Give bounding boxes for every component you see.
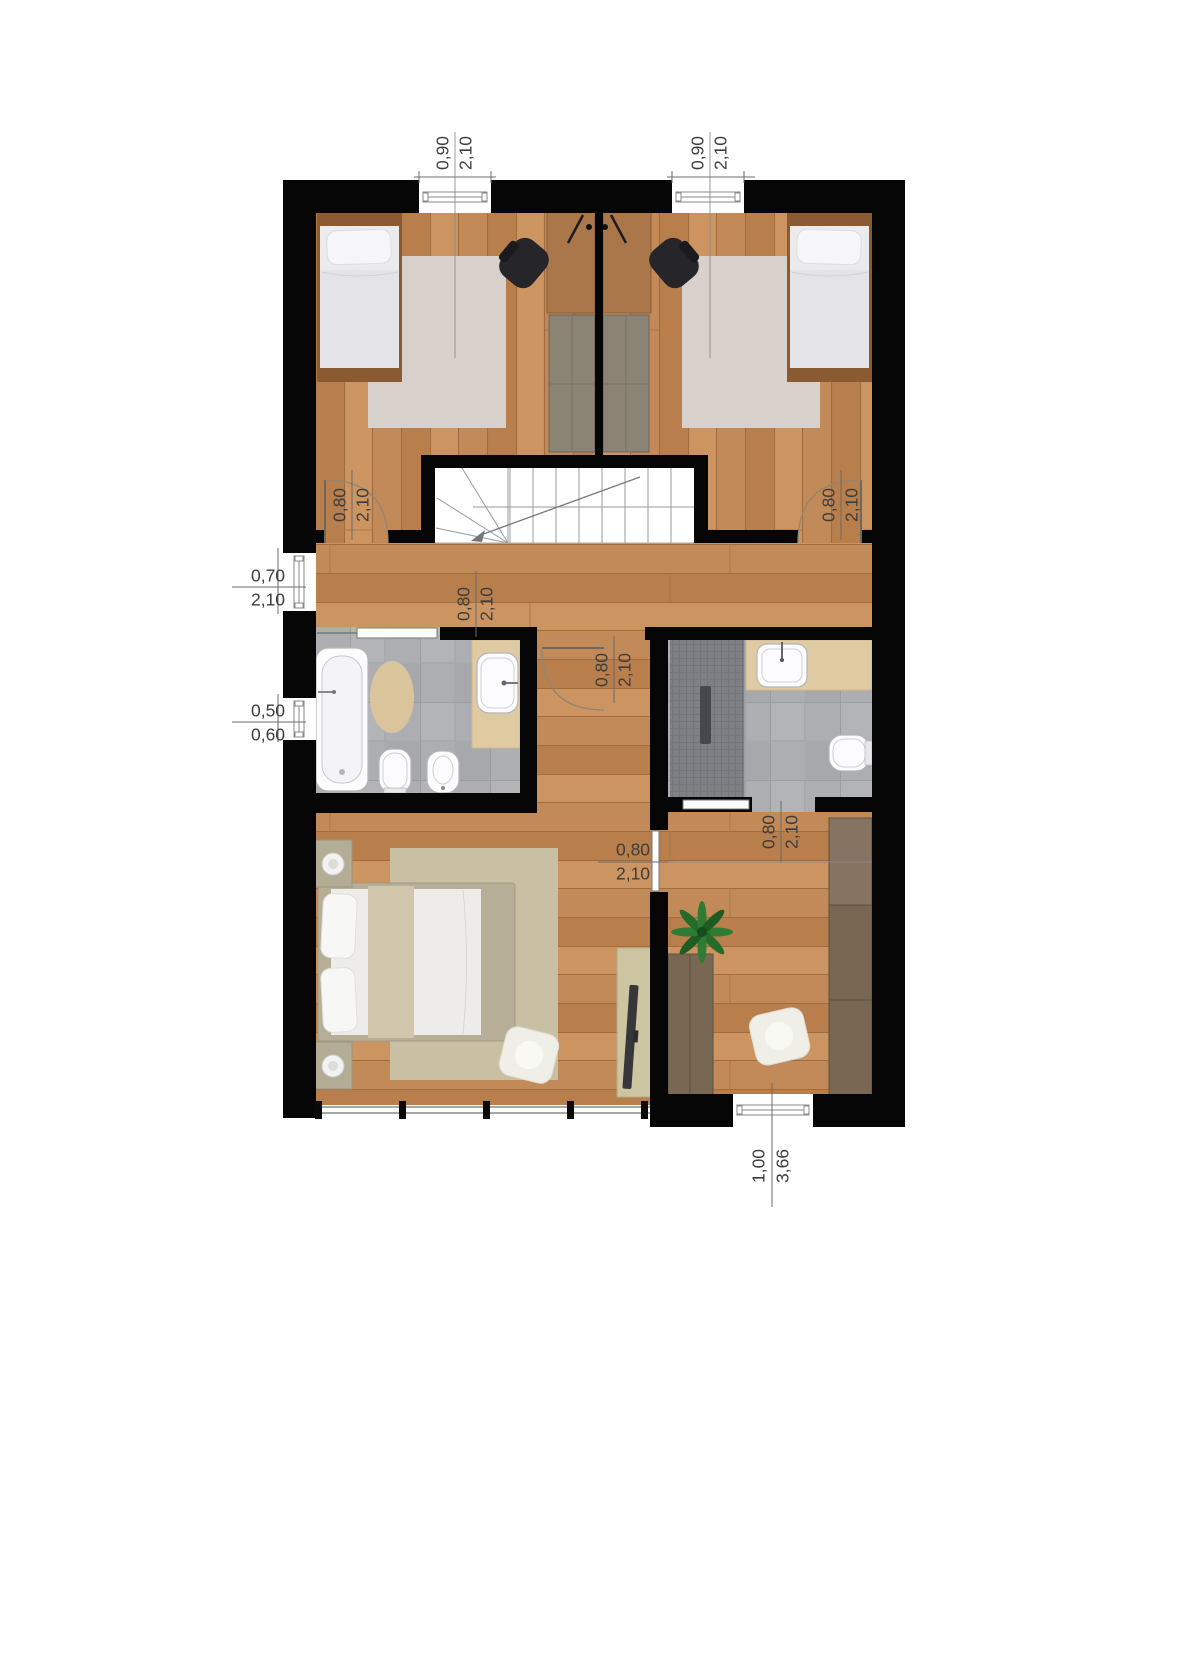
- wall-bath-left-east: [520, 627, 537, 793]
- dim-door-bedroom-left-width: 0,80: [330, 488, 350, 522]
- wall-stair-east: [694, 468, 708, 543]
- wall-bedroom-right-south-b: [861, 530, 872, 543]
- wall-bedroom-left-south-b: [388, 530, 435, 543]
- toilet: [379, 749, 411, 793]
- bath-rug: [370, 661, 414, 733]
- dim-window-top-left-height: 2,10: [456, 136, 476, 170]
- dim-window-top-right-width: 0,90: [688, 136, 708, 170]
- wall-bath-right-south-b: [815, 797, 872, 812]
- window-south: [733, 1094, 813, 1127]
- wardrobe-bedroom-left: [549, 315, 595, 452]
- dim-window-south-width: 1,00: [749, 1149, 769, 1183]
- dim-door-bedroom-right-width: 0,80: [819, 488, 839, 522]
- bed-single-left: [317, 212, 402, 382]
- staircase: [435, 468, 694, 543]
- dim-door-bath-right-height: 2,10: [782, 815, 802, 849]
- floor-plan: 0,90 2,10 0,90 2,10 0,70 2,10 0,50 0,60 …: [0, 0, 1200, 1669]
- wall-bedroom-right-south-a: [708, 530, 798, 543]
- desk-right: [603, 212, 651, 313]
- window-bath-west: [283, 698, 316, 740]
- dim-door-corridor-width: 0,80: [592, 653, 612, 687]
- floor-hall: [316, 543, 872, 627]
- bathtub: [316, 648, 368, 791]
- door-master-room: [650, 830, 668, 892]
- bed-double: [318, 883, 515, 1041]
- wall-exterior-north: [283, 180, 905, 213]
- wardrobe-bedroom-right: [603, 315, 649, 452]
- dim-door-bath-left-width: 0,80: [454, 587, 474, 621]
- dim-door-bath-right-width: 0,80: [759, 815, 779, 849]
- dim-door-bedroom-left-height: 2,10: [353, 488, 373, 522]
- dim-window-bath-west-height: 0,60: [251, 725, 285, 745]
- bidet: [427, 751, 459, 793]
- wall-stair-north: [421, 455, 708, 468]
- washbasin-right: [757, 642, 807, 687]
- toilet-right: [829, 735, 872, 771]
- wall-bath-left-south: [283, 793, 537, 813]
- dim-door-master-room-width: 0,80: [616, 840, 650, 860]
- dim-window-bath-west-width: 0,50: [251, 701, 285, 721]
- nightstand-bottom: [314, 1042, 352, 1089]
- window-top-right: [672, 180, 744, 213]
- wall-corridor-east-lower: [650, 892, 668, 1094]
- bed-single-right: [787, 212, 872, 382]
- dim-door-bedroom-right-height: 2,10: [842, 488, 862, 522]
- dim-window-top-right-height: 2,10: [711, 136, 731, 170]
- wall-bedroom-divider: [595, 213, 603, 455]
- dim-door-hall-west-width: 0,70: [251, 566, 285, 586]
- washbasin-left: [477, 653, 518, 713]
- wardrobe-room-right: [829, 818, 872, 1097]
- wall-bath-right-north: [645, 627, 872, 640]
- shower-drain: [700, 686, 711, 744]
- door-hall-west: [283, 553, 316, 611]
- floor-door-threshold: [752, 797, 815, 812]
- wall-corridor-east-upper: [650, 627, 668, 830]
- dim-door-hall-west-height: 2,10: [251, 590, 285, 610]
- dim-door-corridor-height: 2,10: [615, 653, 635, 687]
- wall-bedroom-left-south-a: [316, 530, 325, 543]
- nightstand-top: [314, 840, 352, 887]
- wall-exterior-east: [872, 180, 905, 1127]
- pocket-door-bath-right: [683, 800, 749, 809]
- dim-door-master-room-height: 2,10: [616, 864, 650, 884]
- plant: [671, 901, 733, 963]
- floor-plan-page: 0,90 2,10 0,90 2,10 0,70 2,10 0,50 0,60 …: [0, 0, 1200, 1669]
- dim-door-bath-left-height: 2,10: [477, 587, 497, 621]
- wall-exterior-west: [283, 180, 316, 1118]
- tv-sideboard: [617, 948, 651, 1097]
- dim-window-top-left-width: 0,90: [433, 136, 453, 170]
- dim-window-south-height: 3,66: [773, 1149, 793, 1183]
- wardrobe-room-left: [668, 954, 713, 1095]
